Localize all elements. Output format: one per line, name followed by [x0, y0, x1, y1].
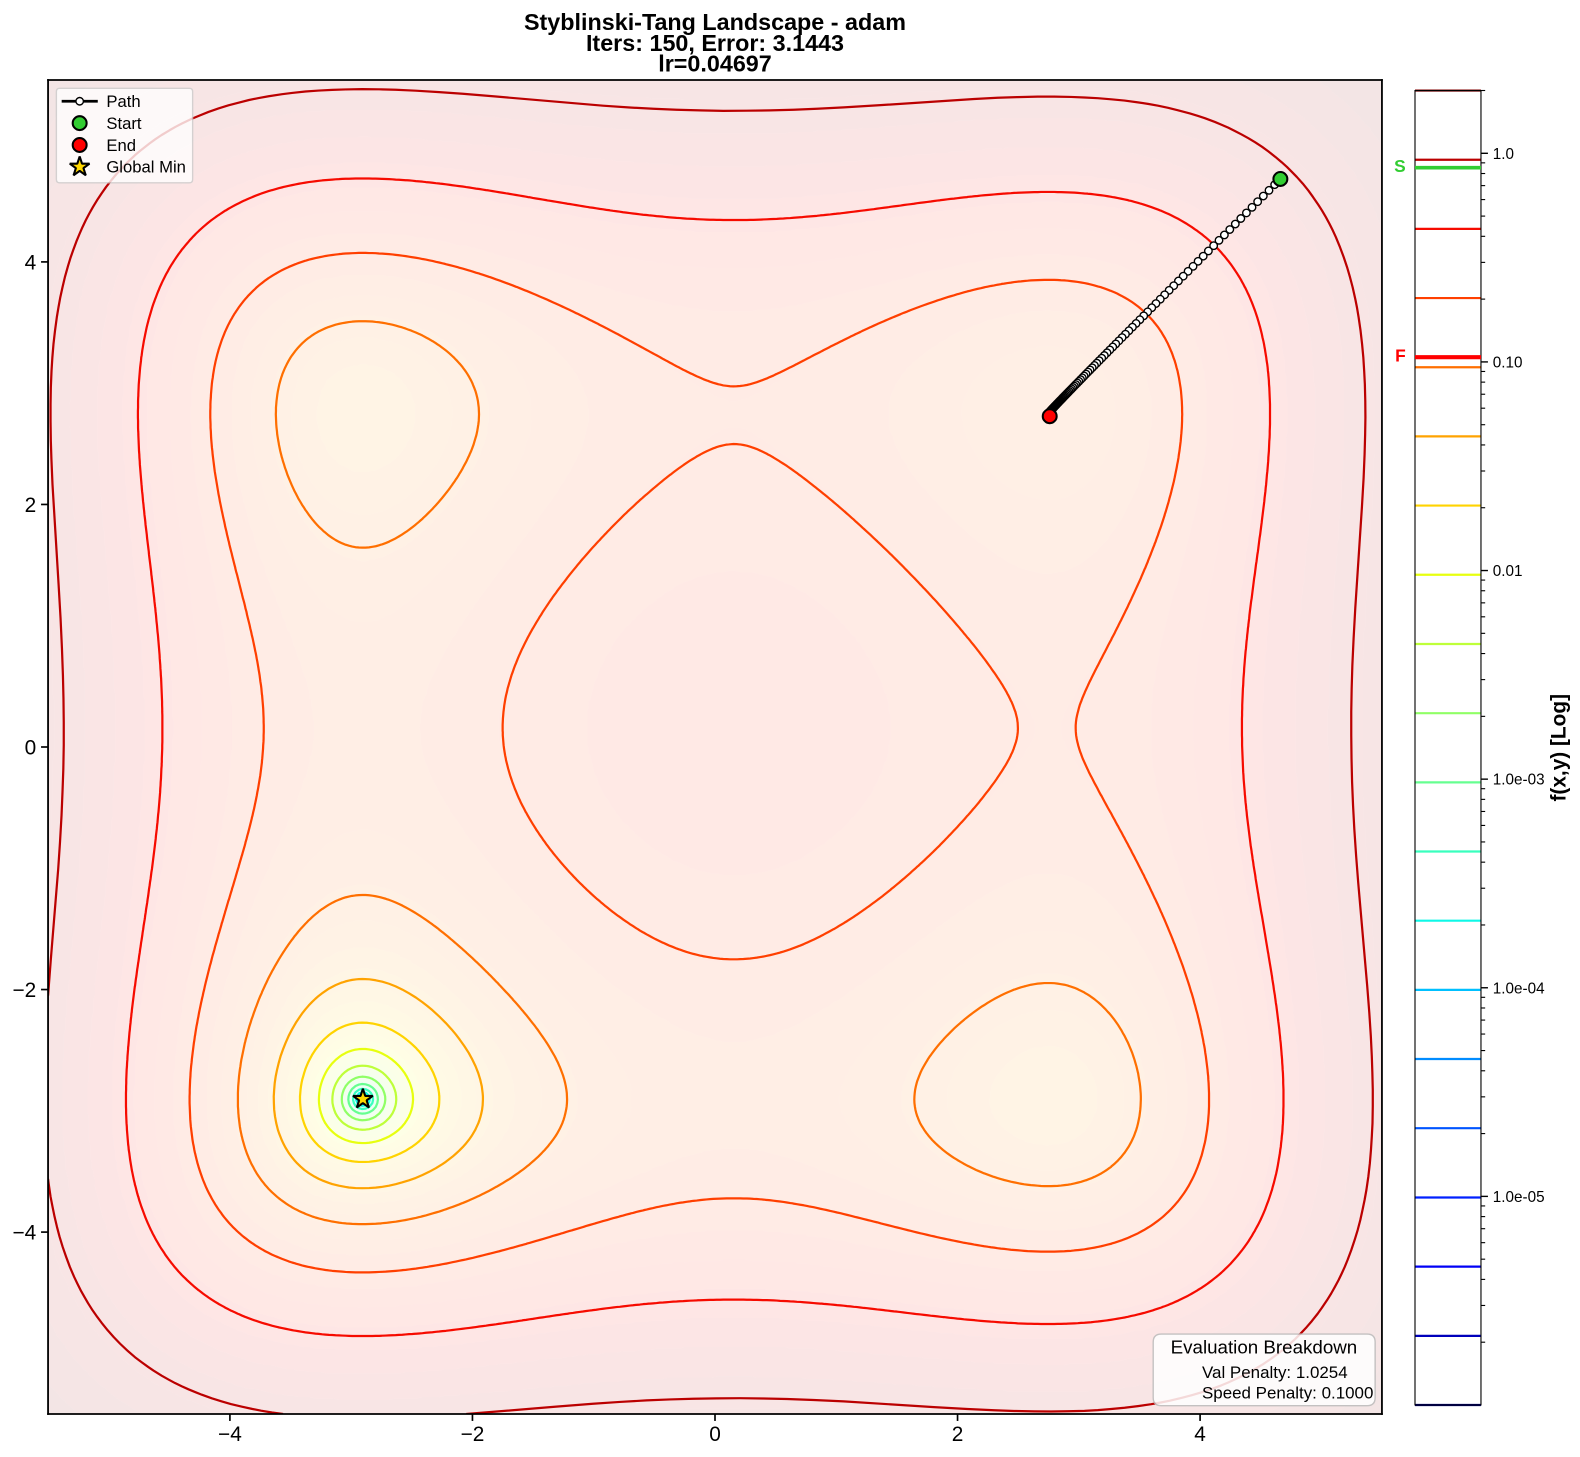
svg-text:Path: Path — [106, 92, 140, 111]
svg-text:Start: Start — [106, 114, 142, 133]
svg-text:0: 0 — [25, 737, 37, 760]
svg-text:f(x,y) [Log]: f(x,y) [Log] — [1547, 694, 1570, 802]
svg-text:4: 4 — [25, 251, 37, 274]
svg-text:1.0: 1.0 — [1493, 146, 1514, 163]
svg-text:2: 2 — [952, 1423, 964, 1446]
svg-text:−2: −2 — [12, 979, 36, 1002]
svg-text:F: F — [1395, 346, 1406, 366]
svg-text:−2: −2 — [461, 1423, 485, 1446]
svg-text:2: 2 — [25, 494, 37, 517]
svg-text:−4: −4 — [12, 1222, 36, 1245]
svg-text:Speed Penalty: 0.1000: Speed Penalty: 0.1000 — [1202, 1383, 1373, 1402]
svg-text:1.0e-04: 1.0e-04 — [1493, 980, 1545, 997]
svg-text:−4: −4 — [218, 1423, 242, 1446]
svg-text:0.10: 0.10 — [1493, 354, 1523, 371]
svg-text:1.0e-05: 1.0e-05 — [1493, 1189, 1545, 1206]
svg-text:0: 0 — [709, 1423, 721, 1446]
svg-text:1.0e-03: 1.0e-03 — [1493, 772, 1545, 789]
svg-text:0.01: 0.01 — [1493, 563, 1523, 580]
svg-text:S: S — [1394, 156, 1406, 176]
svg-text:Val Penalty: 1.0254: Val Penalty: 1.0254 — [1202, 1363, 1348, 1382]
svg-text:Global Min: Global Min — [106, 158, 186, 177]
svg-text:End: End — [106, 136, 136, 155]
svg-text:Evaluation Breakdown: Evaluation Breakdown — [1171, 1336, 1358, 1357]
svg-text:lr=0.04697: lr=0.04697 — [658, 51, 772, 77]
svg-text:4: 4 — [1194, 1423, 1206, 1446]
